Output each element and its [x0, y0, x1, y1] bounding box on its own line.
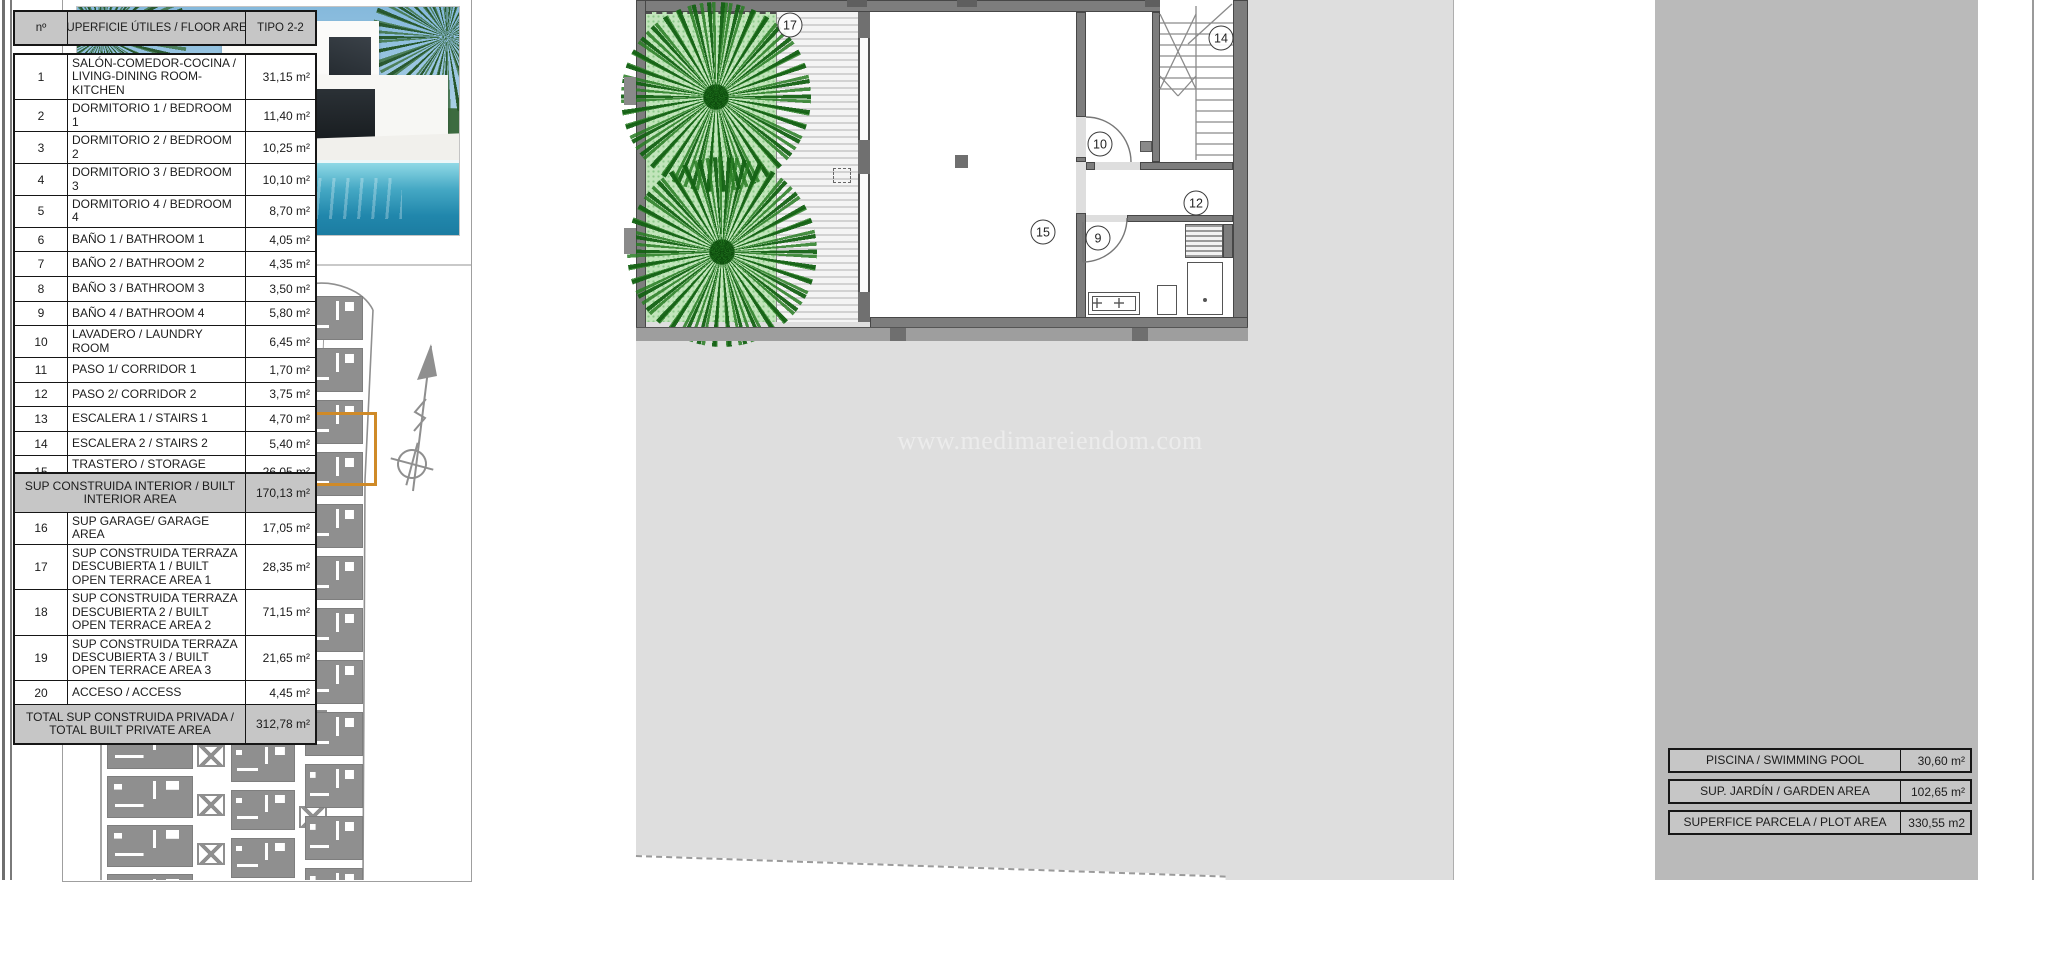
room-marker-12: 12 — [1184, 191, 1209, 216]
summary-value: 30,60 m² — [1900, 750, 1970, 771]
row-label: ACCESO / ACCESS — [68, 681, 245, 705]
table-row: 7BAÑO 2 / BATHROOM 24,35 m² — [15, 251, 315, 276]
plan-sheet-page: { "document": { "watermark": "www.medima… — [0, 0, 2048, 880]
row-label: BAÑO 3 / BATHROOM 3 — [68, 277, 245, 301]
header-number-column: nº — [15, 12, 68, 44]
row-value: 10,10 m² — [245, 164, 315, 195]
row-label: SUP CONSTRUIDA TERRAZA DESCUBIERTA 1 / B… — [68, 545, 245, 589]
row-number: 16 — [15, 513, 68, 544]
row-label: BAÑO 4 / BATHROOM 4 — [68, 302, 245, 326]
header-description-column: SUPERFICIE ÚTILES / FLOOR AREA — [68, 12, 245, 44]
table-row: 1SALÓN-COMEDOR-COCINA / LIVING-DINING RO… — [15, 55, 315, 99]
room-marker-14: 14 — [1209, 26, 1234, 51]
table-row: 9BAÑO 4 / BATHROOM 45,80 m² — [15, 301, 315, 326]
row-value: 4,45 m² — [245, 681, 315, 705]
wall-stub — [624, 228, 636, 254]
table-row: 17SUP CONSTRUIDA TERRAZA DESCUBIERTA 1 /… — [15, 544, 315, 589]
site-unit — [107, 776, 193, 818]
row-value: 31,15 m² — [245, 55, 315, 99]
table-row: 14ESCALERA 2 / STAIRS 25,40 m² — [15, 431, 315, 456]
row-value: 3,50 m² — [245, 277, 315, 301]
room-marker-17: 17 — [778, 13, 803, 38]
row-number: 11 — [15, 358, 68, 382]
site-unit — [305, 764, 363, 808]
row-label: PASO 1/ CORRIDOR 1 — [68, 358, 245, 382]
row-value: 5,40 m² — [245, 432, 315, 456]
room-marker-10: 10 — [1088, 132, 1113, 157]
site-unit — [305, 816, 363, 860]
table-row: 11PASO 1/ CORRIDOR 11,70 m² — [15, 357, 315, 382]
summary-label: SUP. JARDÍN / GARDEN AREA — [1670, 781, 1900, 802]
north-arrow-icon — [385, 344, 439, 491]
row-number: 14 — [15, 432, 68, 456]
table-header: nº SUPERFICIE ÚTILES / FLOOR AREA TIPO 2… — [13, 10, 317, 46]
summary-label: PISCINA / SWIMMING POOL — [1670, 750, 1900, 771]
row-value: 21,65 m² — [245, 636, 315, 680]
row-value: 11,40 m² — [245, 100, 315, 131]
floor-plan: 17141012159 — [636, 0, 1248, 342]
row-number: 1 — [15, 55, 68, 99]
site-unit — [305, 868, 363, 880]
table-row: 2DORMITORIO 1 / BEDROOM 111,40 m² — [15, 99, 315, 131]
row-value: 4,05 m² — [245, 228, 315, 252]
row-number: 20 — [15, 681, 68, 705]
row-number: 7 — [15, 252, 68, 276]
summary-box: SUPERFICE PARCELA / PLOT AREA330,55 m2 — [1668, 810, 1972, 835]
row-value: 5,80 m² — [245, 302, 315, 326]
table-row: 13ESCALERA 1 / STAIRS 14,70 m² — [15, 406, 315, 431]
table-row: 3DORMITORIO 2 / BEDROOM 210,25 m² — [15, 131, 315, 163]
row-number: 12 — [15, 383, 68, 407]
site-unit — [231, 838, 295, 878]
table-row: 19SUP CONSTRUIDA TERRAZA DESCUBIERTA 3 /… — [15, 635, 315, 680]
table-row: SUP CONSTRUIDA INTERIOR / BUILT INTERIOR… — [15, 474, 315, 512]
row-number: 18 — [15, 590, 68, 634]
row-label: DORMITORIO 2 / BEDROOM 2 — [68, 132, 245, 163]
table-row: 20ACCESO / ACCESS4,45 m² — [15, 680, 315, 705]
row-label: PASO 2/ CORRIDOR 2 — [68, 383, 245, 407]
table-rooms-body: 1SALÓN-COMEDOR-COCINA / LIVING-DINING RO… — [13, 53, 317, 534]
row-value: 4,70 m² — [245, 407, 315, 431]
row-number: 8 — [15, 277, 68, 301]
room-marker-9: 9 — [1086, 226, 1111, 251]
row-number: 3 — [15, 132, 68, 163]
summary-value: 330,55 m2 — [1900, 812, 1970, 833]
site-unit — [107, 874, 193, 880]
row-value: 17,05 m² — [245, 513, 315, 544]
table-row: 18SUP CONSTRUIDA TERRAZA DESCUBIERTA 2 /… — [15, 589, 315, 634]
row-number: 17 — [15, 545, 68, 589]
row-value: 3,75 m² — [245, 383, 315, 407]
watermark: www.medimareiendom.com — [880, 426, 1220, 456]
row-number: 6 — [15, 228, 68, 252]
row-label: DORMITORIO 4 / BEDROOM 4 — [68, 196, 245, 227]
row-number: 10 — [15, 326, 68, 357]
site-unit — [231, 742, 295, 782]
row-number: 19 — [15, 636, 68, 680]
row-label: DORMITORIO 3 / BEDROOM 3 — [68, 164, 245, 195]
row-label: ESCALERA 1 / STAIRS 1 — [68, 407, 245, 431]
summary-box: PISCINA / SWIMMING POOL30,60 m² — [1668, 748, 1972, 773]
row-value: 10,25 m² — [245, 132, 315, 163]
row-label: SUP GARAGE/ GARAGE AREA — [68, 513, 245, 544]
row-value: 6,45 m² — [245, 326, 315, 357]
section-label: SUP CONSTRUIDA INTERIOR / BUILT INTERIOR… — [15, 474, 245, 512]
page-border-left-outer — [2, 0, 5, 880]
table-row: 5DORMITORIO 4 / BEDROOM 48,70 m² — [15, 195, 315, 227]
plan-linework — [636, 0, 1248, 342]
row-label: ESCALERA 2 / STAIRS 2 — [68, 432, 245, 456]
row-value: 170,13 m² — [245, 474, 315, 512]
row-label: DORMITORIO 1 / BEDROOM 1 — [68, 100, 245, 131]
page-border-left-inner — [10, 0, 12, 880]
row-value: 8,70 m² — [245, 196, 315, 227]
wall-stub — [624, 77, 636, 105]
row-value: 312,78 m² — [245, 705, 315, 743]
row-label: SUP CONSTRUIDA TERRAZA DESCUBIERTA 2 / B… — [68, 590, 245, 634]
row-value: 4,35 m² — [245, 252, 315, 276]
table-row: 16SUP GARAGE/ GARAGE AREA17,05 m² — [15, 512, 315, 544]
site-unit-xbox — [197, 745, 225, 767]
header-type-column: TIPO 2-2 — [245, 12, 315, 44]
summary-box: SUP. JARDÍN / GARDEN AREA102,65 m² — [1668, 779, 1972, 804]
summary-value: 102,65 m² — [1900, 781, 1970, 802]
row-label: SALÓN-COMEDOR-COCINA / LIVING-DINING ROO… — [68, 55, 245, 99]
table-row: TOTAL SUP CONSTRUIDA PRIVADA / TOTAL BUI… — [15, 704, 315, 743]
section-label: TOTAL SUP CONSTRUIDA PRIVADA / TOTAL BUI… — [15, 705, 245, 743]
table-row: 8BAÑO 3 / BATHROOM 33,50 m² — [15, 276, 315, 301]
table-row: 4DORMITORIO 3 / BEDROOM 310,10 m² — [15, 163, 315, 195]
site-unit — [231, 790, 295, 830]
row-label: LAVADERO / LAUNDRY ROOM — [68, 326, 245, 357]
row-label: BAÑO 2 / BATHROOM 2 — [68, 252, 245, 276]
site-unit — [107, 825, 193, 867]
row-number: 13 — [15, 407, 68, 431]
table-built-body: SUP CONSTRUIDA INTERIOR / BUILT INTERIOR… — [13, 472, 317, 745]
row-number: 2 — [15, 100, 68, 131]
row-value: 71,15 m² — [245, 590, 315, 634]
row-value: 28,35 m² — [245, 545, 315, 589]
site-unit-xbox — [197, 843, 225, 865]
table-row: 10LAVADERO / LAUNDRY ROOM6,45 m² — [15, 325, 315, 357]
row-number: 5 — [15, 196, 68, 227]
site-unit-xbox — [197, 794, 225, 816]
table-row: 12PASO 2/ CORRIDOR 23,75 m² — [15, 382, 315, 407]
row-number: 9 — [15, 302, 68, 326]
summary-label: SUPERFICE PARCELA / PLOT AREA — [1670, 812, 1900, 833]
row-number: 4 — [15, 164, 68, 195]
row-label: BAÑO 1 / BATHROOM 1 — [68, 228, 245, 252]
row-value: 1,70 m² — [245, 358, 315, 382]
plot-boundary-dashed — [633, 855, 1226, 968]
row-label: SUP CONSTRUIDA TERRAZA DESCUBIERTA 3 / B… — [68, 636, 245, 680]
page-border-right — [2032, 0, 2034, 880]
table-row: 6BAÑO 1 / BATHROOM 14,05 m² — [15, 227, 315, 252]
room-marker-15: 15 — [1031, 220, 1056, 245]
